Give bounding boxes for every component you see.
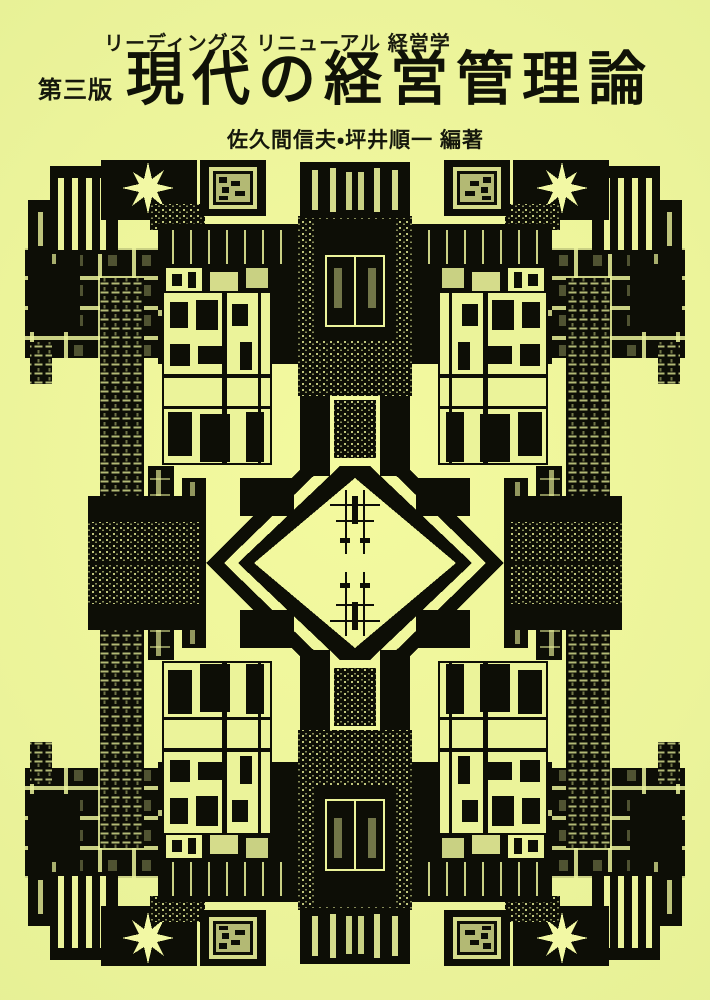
edition-label: 第三版 [38, 56, 113, 105]
cover-art [0, 160, 710, 966]
title-row: 第三版 現代の経営管理論 [38, 50, 654, 111]
cover-art-collage [0, 160, 710, 966]
authors-line: 佐久間信夫・坪井順一 編著 [227, 124, 484, 154]
book-title: 現代の経営管理論 [126, 50, 654, 111]
book-cover: リーディングス リニューアル 経営学 第三版 現代の経営管理論 佐久間信夫・坪井… [0, 0, 710, 1000]
